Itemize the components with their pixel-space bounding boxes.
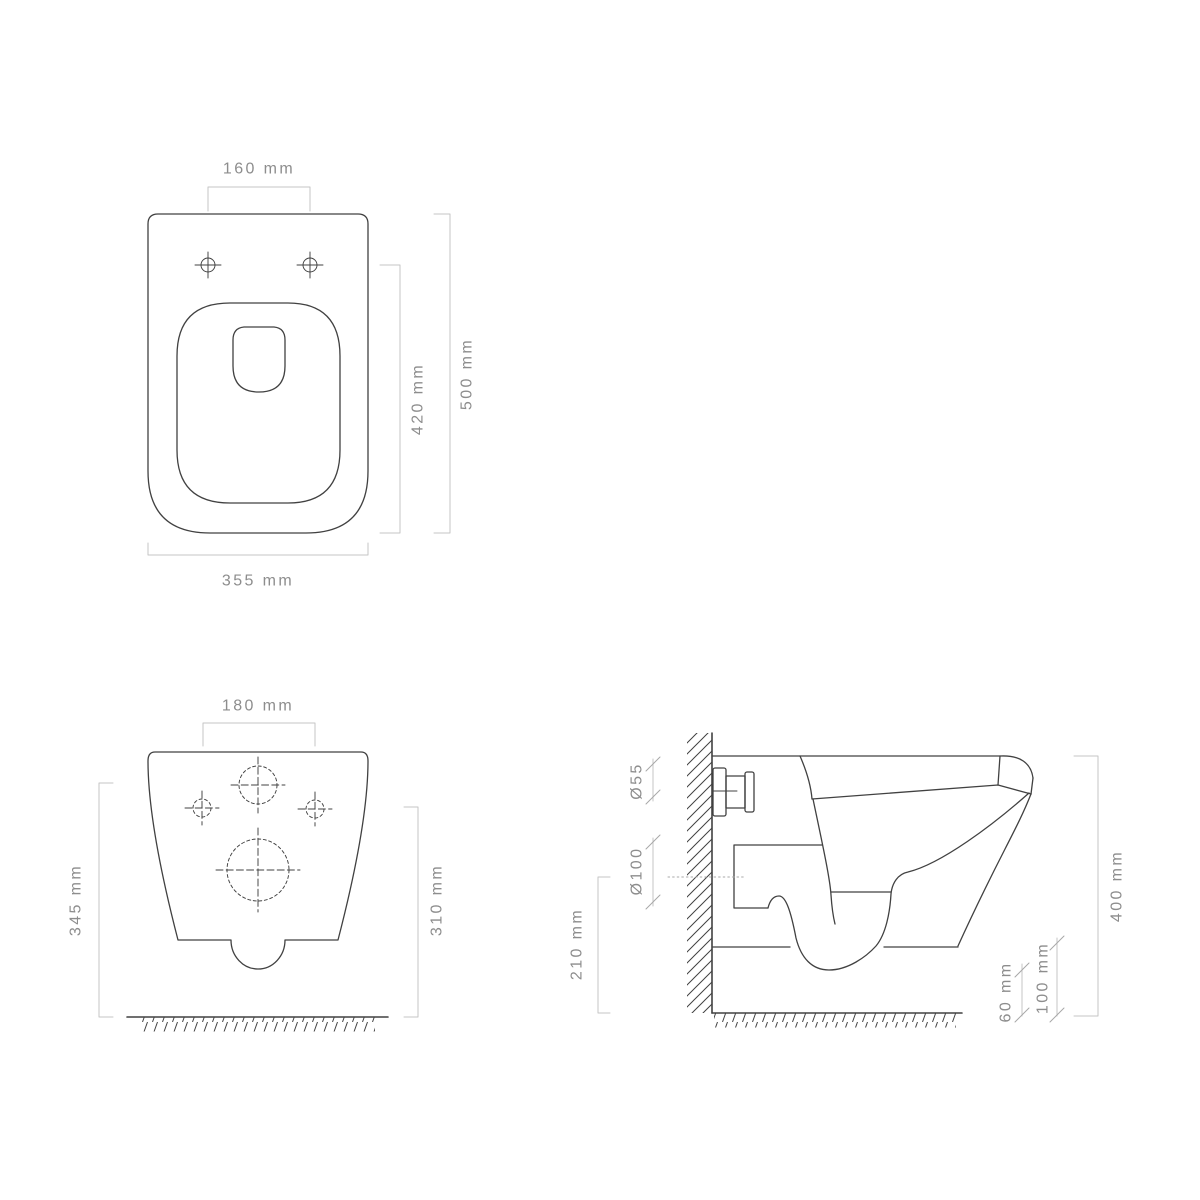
dim-front-clearance-label: 100 mm [1035, 942, 1052, 1014]
toilet-outline-top [148, 214, 368, 533]
dim-overall-width-label: 355 mm [222, 573, 294, 590]
top-view: 160 mm 500 mm 420 mm 355 mm [148, 161, 476, 590]
dim-overall-width-lines [148, 543, 368, 555]
dim-inlet-height-label: 345 mm [68, 864, 85, 936]
profile-seat-back-curve [800, 756, 812, 799]
dim-hole-depth-label: 420 mm [410, 363, 427, 435]
dim-fixing-height-lines [404, 807, 418, 1017]
technical-drawing-page: 160 mm 500 mm 420 mm 355 mm 18 [0, 0, 1200, 1200]
dim-hole-spacing-front-lines [203, 723, 315, 746]
fixing-hole-right-front-cross [298, 792, 332, 826]
inlet-spigot-cap [745, 772, 754, 812]
floor-hatch-side [714, 1014, 956, 1028]
drain-hole-cross [216, 828, 300, 912]
side-view: Ø55 Ø100 210 mm 400 mm 60 mm 100 mm [569, 733, 1126, 1028]
profile-bowl-back-wall [813, 799, 835, 924]
profile-front-underside [958, 794, 1031, 946]
floor-hatch-front [138, 1018, 375, 1032]
wall-hatch [687, 733, 712, 1013]
inlet-spigot-body [726, 776, 745, 808]
dim-inlet-diameter-label: Ø55 [629, 762, 646, 799]
dim-hole-spacing-front-label: 180 mm [222, 698, 294, 715]
dim-overall-depth-label: 500 mm [459, 338, 476, 410]
dim-outlet-height-lines [598, 877, 610, 1013]
dim-outlet-height-label: 210 mm [569, 908, 586, 980]
dim-trap-clearance-label: 60 mm [998, 962, 1015, 1023]
profile-seat-line [812, 785, 1031, 799]
dim-overall-height-label: 400 mm [1109, 850, 1126, 922]
dim-inlet-height-lines [99, 783, 113, 1017]
dim-hole-depth-lines [380, 265, 400, 533]
dim-fixing-height-label: 310 mm [429, 864, 446, 936]
dim-overall-depth-lines [434, 214, 450, 533]
inlet-spigot-flange [713, 768, 726, 816]
dim-outlet-diameter-label: Ø100 [629, 847, 646, 896]
fixing-hole-left-front-cross [185, 791, 219, 825]
front-view: 180 mm 345 mm 310 mm [68, 698, 446, 1032]
seat-outline [177, 303, 340, 503]
fixing-hole-right-cross [297, 252, 323, 278]
flush-opening-outline [233, 327, 285, 392]
dim-hole-spacing-lines [208, 187, 310, 211]
fixing-hole-left-cross [195, 252, 221, 278]
profile-top-edge [712, 756, 1033, 778]
dim-overall-height-lines [1074, 756, 1098, 1016]
dim-hole-spacing-label: 160 mm [223, 161, 295, 178]
drain-box-outline [734, 845, 822, 908]
profile-trap-and-bowl [768, 793, 1029, 970]
profile-front-nose [1031, 778, 1033, 794]
toilet-dimension-drawing: 160 mm 500 mm 420 mm 355 mm 18 [0, 0, 1200, 1200]
profile-lid-back-edge [998, 756, 1000, 785]
